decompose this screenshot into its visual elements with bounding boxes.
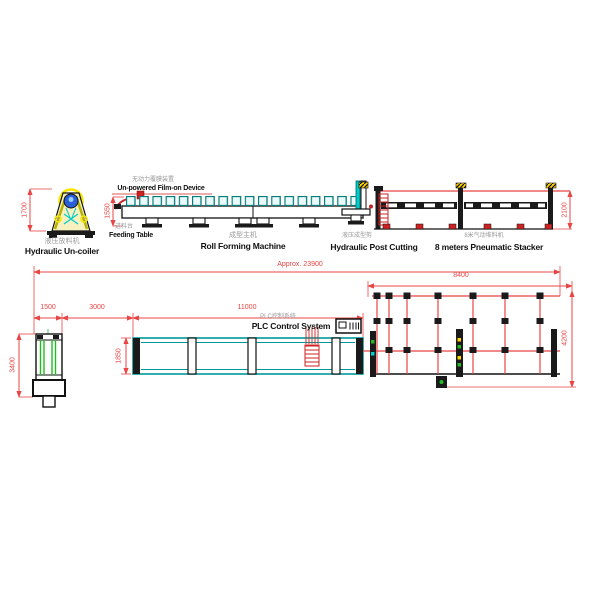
cad-linework (0, 0, 600, 600)
machine-bed-plan (133, 327, 363, 374)
stacker-elevation (374, 183, 572, 229)
uncoiler-elevation (47, 190, 95, 239)
roll-former-elevation (122, 196, 363, 228)
label-film-device-cn: 无动力覆膜装置 (132, 177, 174, 183)
dim-infeed-height: 1550 (105, 203, 112, 219)
dim-stacker-length: 8400 (453, 272, 469, 279)
uncoiler-plan (33, 329, 65, 407)
label-uncoiler-cn: 液压放料机 (45, 238, 80, 245)
plc-panel-icon (336, 319, 361, 333)
label-feeding-table-en: Feeding Table (109, 232, 153, 239)
dim-machine-length: 11000 (238, 304, 257, 311)
label-feeding-table-cn: 进料台 (115, 224, 133, 230)
label-roll-former-cn: 成型主机 (229, 232, 257, 239)
label-film-device-en: Un-powered Film-on Device (117, 185, 204, 192)
dim-uncoiler-to-machine: 3000 (89, 304, 105, 311)
dim-uncoiler-width: 3400 (10, 357, 17, 373)
layout-drawing: 液压放料机 Hydraulic Un-coiler 无动力覆膜装置 Un-pow… (0, 0, 600, 600)
label-stacker-en: 8 meters Pneumatic Stacker (435, 243, 543, 252)
label-uncoiler-en: Hydraulic Un-coiler (25, 247, 99, 256)
dim-overall-length: Approx. 23900 (277, 261, 323, 268)
dim-uncoiler-height: 1700 (22, 202, 29, 218)
label-roll-former-en: Roll Forming Machine (201, 242, 286, 251)
dim-stacker-width: 4200 (562, 330, 569, 346)
label-post-cutting-en: Hydraulic Post Cutting (330, 243, 417, 252)
label-plc-en: PLC Control System (252, 322, 331, 331)
label-post-cutting-cn: 液压成型剪 (342, 233, 372, 239)
stacker-plan (363, 293, 560, 389)
dim-uncoiler-length: 1500 (40, 304, 56, 311)
dim-machine-width: 1850 (116, 348, 123, 364)
label-stacker-cn: 8米气动堆料机 (464, 233, 503, 239)
label-plc-cn: PLC控制系统 (260, 314, 296, 320)
dim-stacker-height: 2100 (562, 202, 569, 218)
machine-feet (142, 218, 319, 228)
